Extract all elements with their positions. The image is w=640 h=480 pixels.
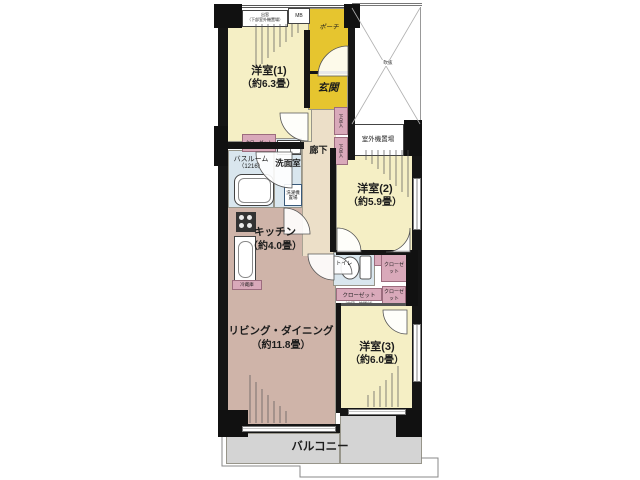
- toilet-area: [333, 252, 375, 286]
- floor-plan: クローゼット クローゼット クローゼット （中段・枕棚付） クローゼット 下足入…: [0, 0, 640, 480]
- washer-space-label: 洗濯機 置場: [285, 190, 301, 201]
- entrance-label: 玄関: [308, 82, 348, 96]
- outdoor-unit-label: 室外機置場: [352, 136, 404, 144]
- bay-window-double-line: [242, 5, 346, 8]
- closet-room2: クローゼット: [381, 254, 407, 282]
- meter-box-label: MB: [288, 13, 310, 20]
- closet-room3: クローゼット: [382, 286, 406, 304]
- wall-room1-bottom: [226, 142, 304, 149]
- bay-window-label: 出窓 （下部室外機置場）: [242, 13, 288, 23]
- void-top-double-line: [352, 3, 422, 6]
- shoe-box-lower-label: 下足入: [338, 144, 344, 158]
- balcony-label: バルコニー: [260, 440, 380, 455]
- window-room3-right: [413, 324, 421, 382]
- window-room3-balcony: [348, 409, 406, 415]
- kitchen-label: キッチン （約4.0畳）: [238, 226, 312, 253]
- post-right-upper: [404, 120, 422, 156]
- washer-space-box: 洗濯機 置場: [284, 184, 302, 206]
- refrigerator-box: 冷蔵庫: [232, 280, 262, 290]
- closet-room3-label: クローゼット: [383, 288, 405, 302]
- bathtub-icon: [234, 174, 274, 206]
- refrigerator-label: 冷蔵庫: [240, 282, 254, 288]
- post-right-mid: [406, 250, 418, 306]
- living-dining-label: リビング・ダイニング （約11.8畳）: [222, 325, 340, 352]
- wall-entrance-threshold: [310, 71, 348, 74]
- post-bottom-left: [218, 410, 248, 437]
- bathtub-inner: [238, 178, 271, 203]
- window-room2-right: [413, 178, 421, 230]
- void-label: 吹抜: [378, 60, 398, 66]
- closet-hall: クローゼット: [336, 288, 382, 301]
- closet-hall-label: クローゼット: [342, 291, 375, 299]
- bathroom-label: バスルーム （1216）: [228, 155, 274, 172]
- void-area: [352, 7, 421, 125]
- window-living-balcony: [242, 426, 336, 432]
- shoe-box-upper: 下足入: [334, 107, 348, 135]
- washroom-label: 洗面室: [271, 158, 305, 169]
- toilet-label: トイレ: [334, 261, 354, 268]
- hallway-label: 廊下: [302, 145, 335, 157]
- post-left-mid: [214, 126, 228, 166]
- closet-room2-label: クローゼット: [382, 261, 406, 275]
- western3-label: 洋室(3) （約6.0畳）: [340, 340, 414, 367]
- shoe-box-lower: 下足入: [334, 137, 348, 165]
- western1-label: 洋室(1) （約6.3畳）: [226, 64, 312, 91]
- post-top-left: [214, 4, 242, 28]
- porch-label: ポーチ: [308, 24, 350, 32]
- western2-label: 洋室(2) （約5.9畳）: [336, 182, 414, 209]
- shoe-box-upper-label: 下足入: [338, 114, 344, 128]
